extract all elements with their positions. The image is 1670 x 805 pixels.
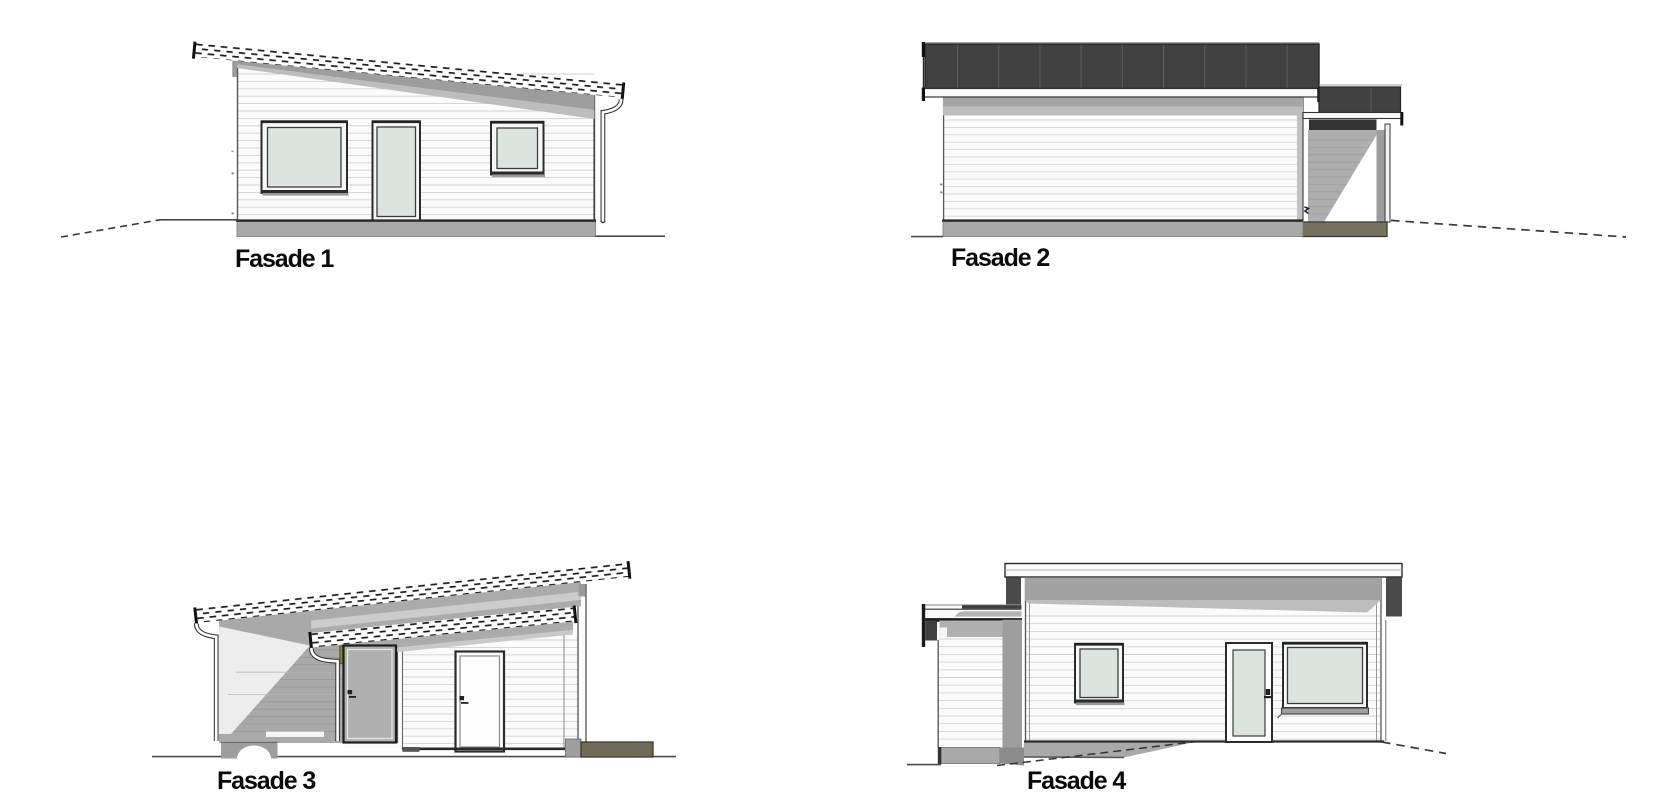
svg-text:Fasade 2: Fasade 2 — [951, 244, 1049, 272]
svg-text:Fasade 4: Fasade 4 — [1027, 767, 1126, 795]
svg-text:Fasade 1: Fasade 1 — [235, 245, 334, 273]
svg-text:Fasade 3: Fasade 3 — [217, 767, 315, 795]
